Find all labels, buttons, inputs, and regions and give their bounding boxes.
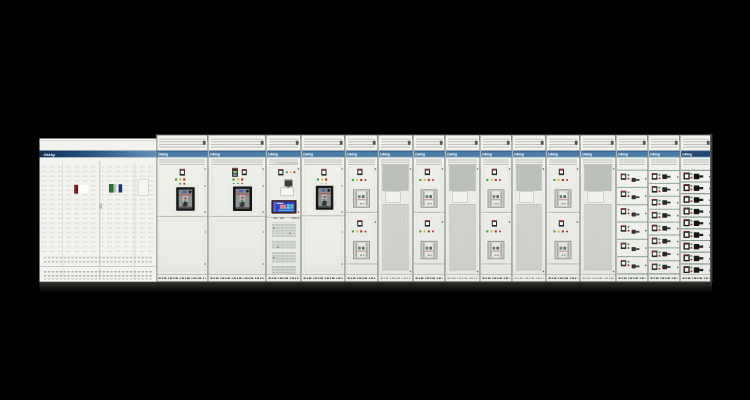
svg-text:Okkkg: Okkkg (347, 152, 357, 156)
svg-text:Okkkg: Okkkg (682, 152, 692, 156)
svg-text:Okkkg: Okkkg (210, 152, 220, 156)
svg-text:Okkkg: Okkkg (447, 152, 457, 156)
svg-text:Okkkg: Okkkg (380, 152, 390, 156)
svg-text:Okkkg: Okkkg (582, 152, 592, 156)
svg-text:Okkkg: Okkkg (415, 152, 425, 156)
svg-text:Okkkg: Okkkg (268, 152, 278, 156)
svg-text:Okkkg: Okkkg (514, 152, 524, 156)
svg-text:Okkkg: Okkkg (618, 152, 628, 156)
svg-text:Okkkg: Okkkg (44, 153, 56, 157)
svg-text:Okkkg: Okkkg (158, 152, 168, 156)
svg-text:Okkkg: Okkkg (548, 152, 558, 156)
svg-text:Okkkg: Okkkg (650, 152, 660, 156)
svg-text:Okkkg: Okkkg (482, 152, 492, 156)
svg-text:Okkkg: Okkkg (303, 152, 313, 156)
